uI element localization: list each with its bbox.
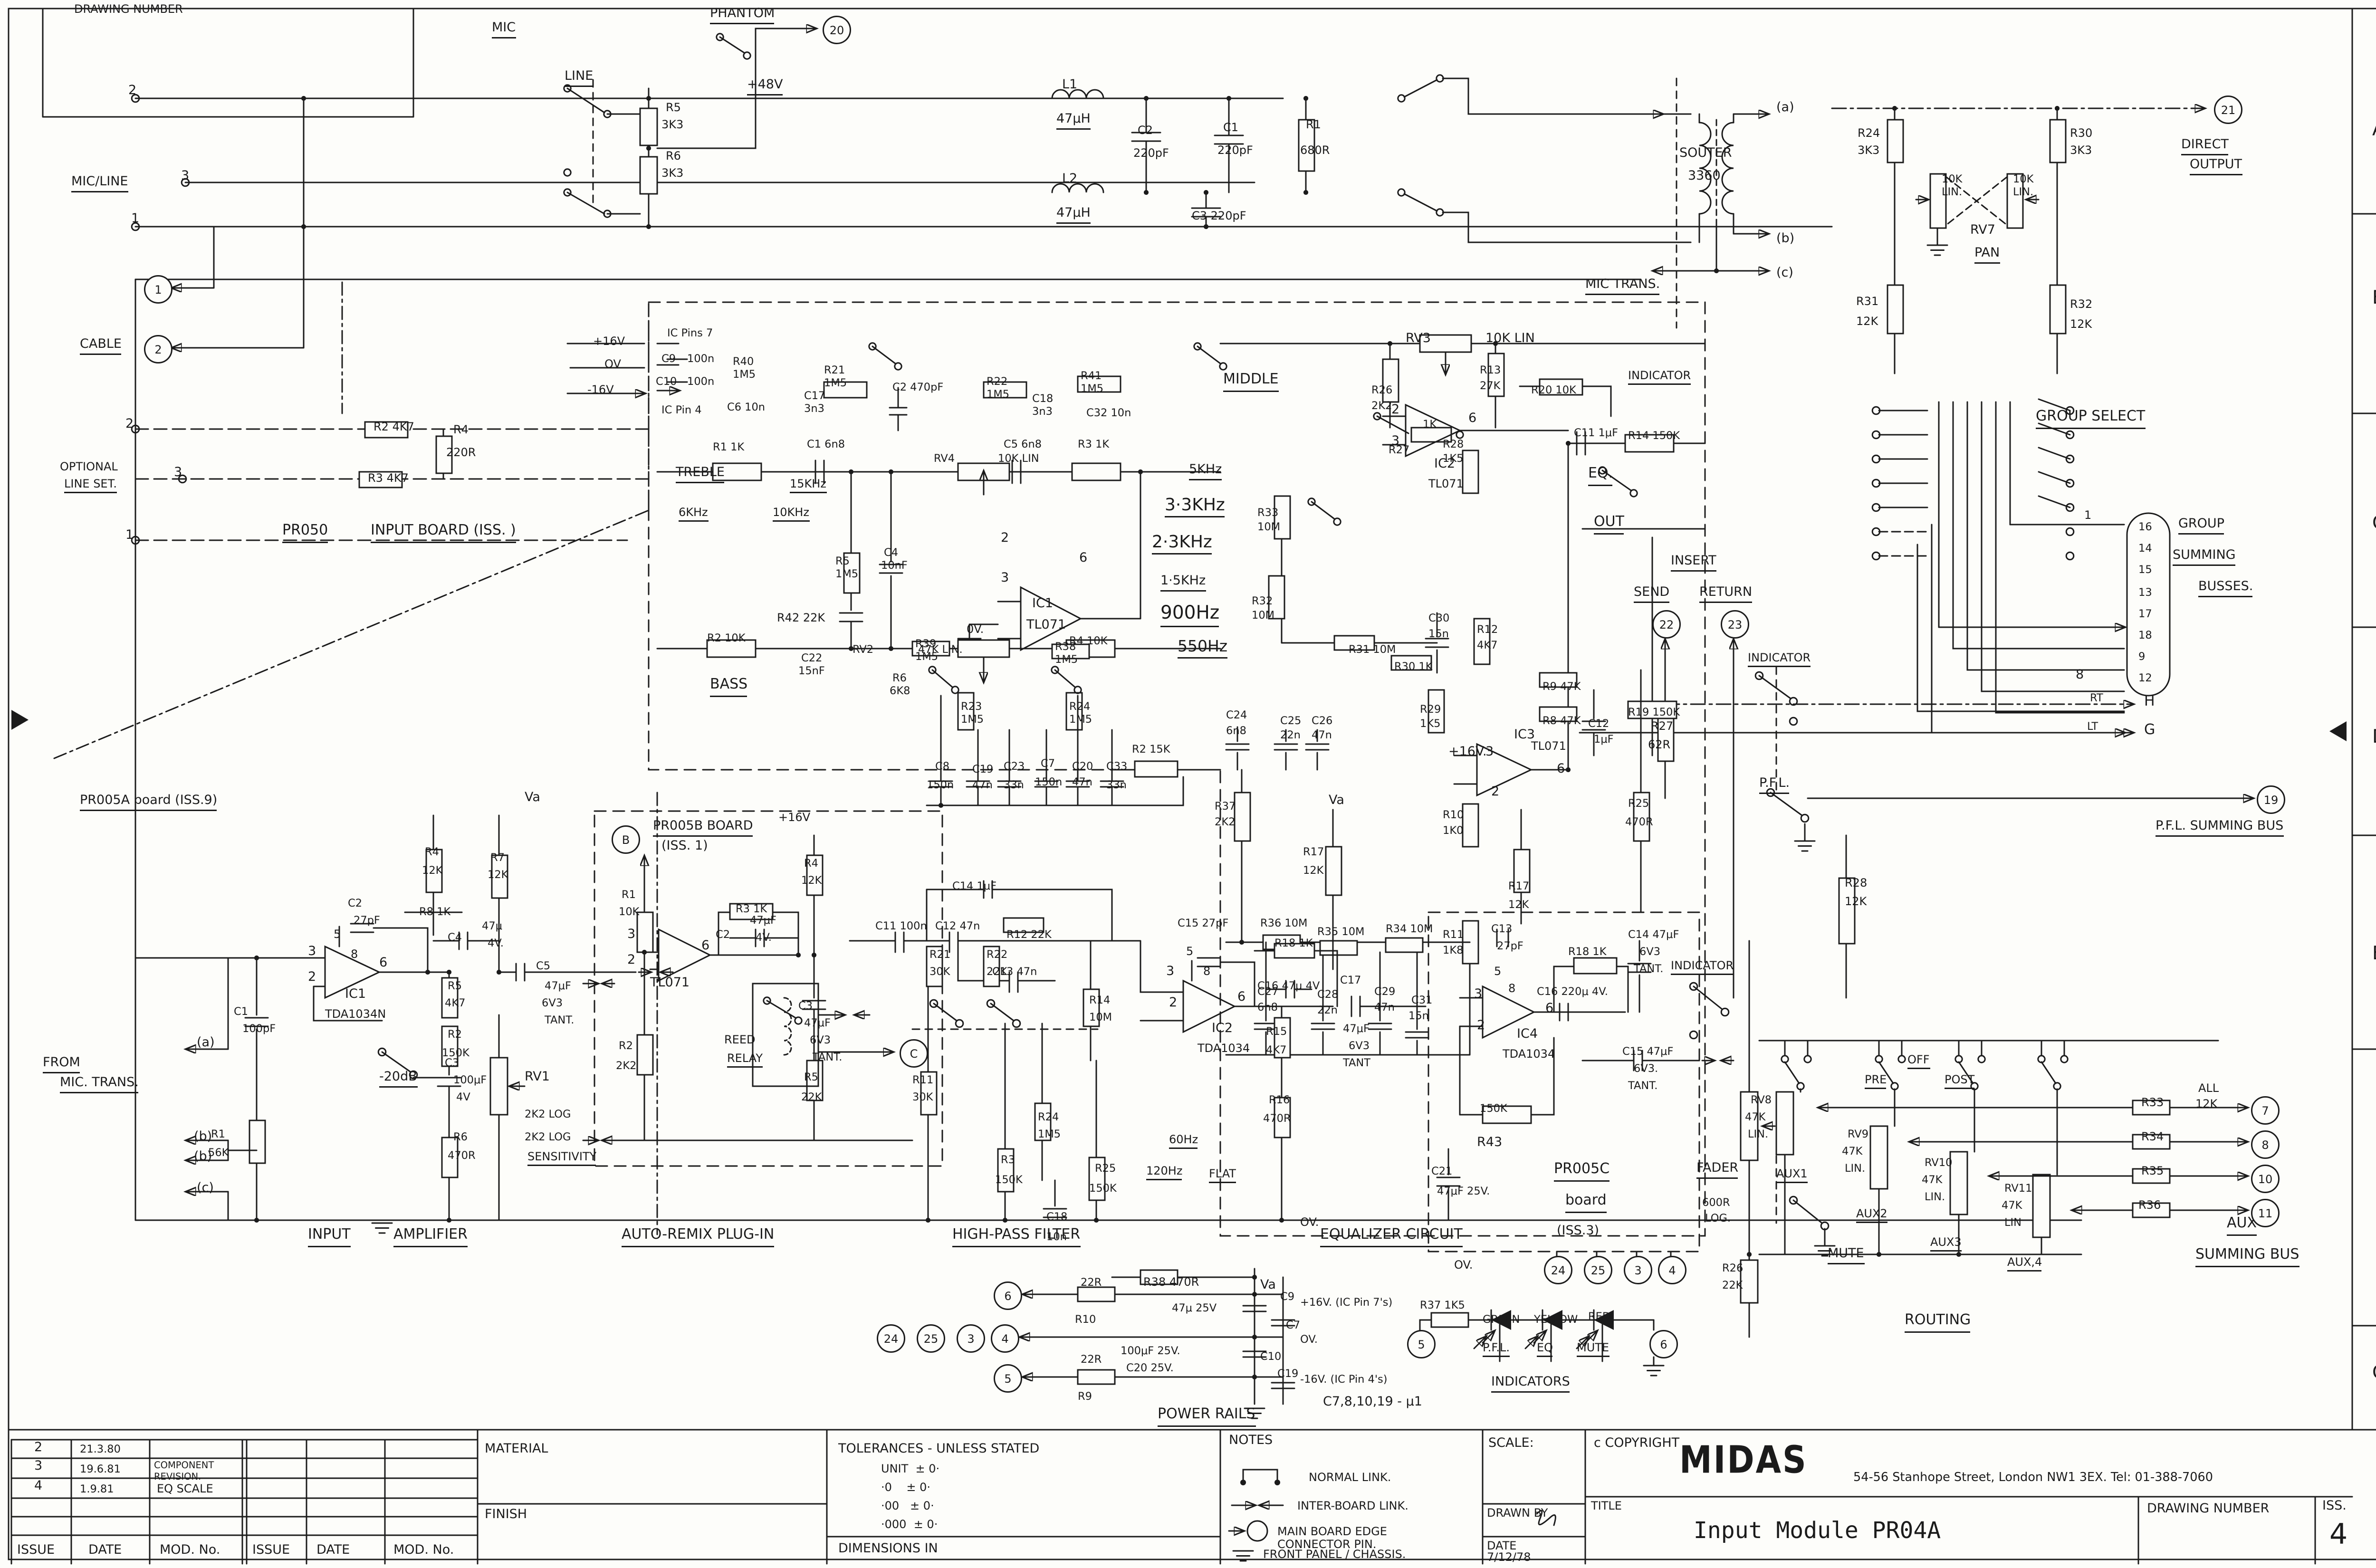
schematic-label: R24 [1069,701,1090,713]
schematic-label: 3·3KHz [1165,496,1225,517]
schematic-label: AMPLIFIER [393,1229,468,1247]
schematic-label: Va [1329,795,1344,809]
schematic-label: OPTIONAL [60,462,118,474]
schematic-label: R2 15K [1132,744,1170,755]
connector-pin-19: 19 [2257,785,2285,814]
schematic-label: P.F.L. [1483,1343,1510,1358]
schematic-label: 3n3 [804,403,824,415]
schematic-label: 1M5 [1038,1129,1061,1140]
tolerance-line: UNIT ± 0· [881,1463,939,1475]
schematic-label: R27 [1651,721,1673,733]
schematic-label: 1M5 [915,651,938,663]
pan-direct-output [1832,108,2204,373]
schematic-label: TL071 [1428,479,1464,491]
schematic-label: R5 [448,981,462,992]
schematic-label: R22 [987,949,1007,961]
schematic-label: 47K [2002,1200,2022,1212]
schematic-label: R25 [1095,1163,1116,1175]
schematic-label: C13 [1491,924,1512,935]
schematic-label: TANT. [813,1052,842,1063]
connector-pin-5: 5 [994,1364,1022,1393]
schematic-label: 2 [1491,787,1499,800]
schematic-label: R1 [622,889,636,901]
schematic-label: 1K [1423,419,1437,430]
schematic-label: 6 [379,958,387,971]
schematic-label: 27pF [354,915,380,927]
drawing-title: Input Module PR04A [1694,1517,1941,1544]
schematic-label: (a) [1776,103,1794,116]
schematic-label: TL071 [650,978,690,991]
schematic-label: R12 [1477,624,1498,636]
schematic-label: 1K5 [1420,718,1440,730]
schematic-label: C16 47μ 4V [1257,981,1320,992]
schematic-label: GREEN [1483,1314,1520,1326]
schematic-label: 470R [1263,1113,1291,1125]
schematic-label: SOUTER [1679,148,1732,162]
schematic-label: C10 [656,376,677,388]
rev-header-mod: MOD. No. [393,1544,454,1558]
schematic-label: R32 [1252,596,1273,607]
schematic-label: 10M [1252,610,1274,621]
schematic-label: 1 [2084,510,2091,522]
connector-pin-4: 4 [991,1324,1019,1353]
schematic-label: R30 [2070,128,2092,140]
schematic-label: 3 [1166,966,1174,980]
schematic-label: 120Hz [1146,1166,1182,1181]
schematic-label: 10K LIN [1485,334,1535,347]
connector-pin-5: 5 [1407,1330,1436,1358]
schematic-label: C32 10n [1086,408,1131,419]
schematic-label: 47μH [1056,208,1091,224]
schematic-label: INPUT BOARD (ISS. ) [371,525,516,543]
schematic-label: PHANTOM [710,9,775,25]
schematic-label: 10K [1942,174,1962,185]
schematic-label: R26 [1371,385,1392,396]
schematic-label: board [1565,1195,1607,1213]
schematic-label: C9 [1280,1291,1294,1303]
schematic-label: H [2144,696,2155,711]
rev-issue: 2 [34,1441,42,1455]
schematic-label: 3K3 [661,120,683,132]
connector-pin-B: B [612,825,640,854]
rev-date: 19.6.81 [80,1463,121,1475]
insert-pfl [1658,640,2252,998]
rev-mod: EQ SCALE [157,1482,213,1495]
schematic-label: 1 [131,214,139,227]
schematic-label: R2 [619,1041,633,1052]
schematic-label: C30 [1428,613,1449,624]
schematic-label: 1K0 [1443,825,1463,837]
schematic-label: 15nF [798,666,825,677]
schematic-label: 1·5KHz [1160,576,1206,592]
schematic-label: 3K3 [2070,145,2092,157]
schematic-label: CABLE [80,339,122,355]
schematic-label: 12K [1508,899,1529,911]
connector-pin-8: 8 [2251,1130,2280,1159]
schematic-label: C12 [1588,718,1609,730]
schematic-label: RV10 [1925,1157,1952,1169]
schematic-label: 6KHz [679,507,708,522]
schematic-label: R3 1K [1078,439,1109,450]
schematic-label: 33n [1106,780,1127,791]
schematic-label: 100n [687,354,714,365]
schematic-label: GROUP SELECT [2036,411,2145,429]
schematic-label: R16 [1269,1095,1290,1106]
schematic-label: (c) [197,1183,214,1196]
schematic-linework [0,0,2376,1568]
company-address: 54-56 Stanhope Street, London NW1 3EX. T… [1853,1471,2213,1485]
schematic-label: R1 1K [713,442,744,453]
schematic-label: ROUTING [1905,1314,1971,1332]
schematic-label: 2 [1001,533,1009,546]
schematic-label: R38 [1055,641,1076,653]
schematic-label: R33 [1257,507,1278,519]
schematic-label: 2 [125,419,134,432]
schematic-label: REED [724,1035,755,1047]
date-value: 7/12/78 [1487,1551,1531,1564]
schematic-label: TDA1034 [1503,1049,1555,1061]
schematic-label: C7,8,10,19 - μ1 [1323,1397,1422,1410]
schematic-label: C14 1μF [952,881,996,892]
schematic-label: 12K [488,870,508,881]
schematic-label: 22R [1081,1277,1102,1289]
schematic-label: 0V. [967,624,984,636]
schematic-label: R12 22K [1006,929,1052,941]
schematic-label: R29 [1420,704,1441,716]
schematic-label: Va [525,793,540,806]
schematic-label: R3 [1001,1155,1015,1166]
schematic-label: R7 [490,852,505,864]
schematic-label: C3 [445,1058,459,1069]
bus-number: 12 [2138,673,2152,685]
schematic-label: 2 [1169,998,1177,1011]
schematic-label: 3K3 [661,168,683,180]
schematic-label: C3 220pF [1192,211,1246,223]
schematic-label: 2K2 [616,1061,636,1072]
schematic-label: LOG. [1705,1213,1731,1224]
schematic-label: 10K [619,907,639,918]
schematic-label: 3 [174,468,182,481]
schematic-label: R18 1K [1274,938,1313,949]
schematic-label: FROM [43,1058,80,1074]
schematic-label: 1M5 [1069,714,1092,726]
tolerances-title: TOLERANCES - UNLESS STATED [838,1443,1039,1457]
schematic-label: (b) [1776,234,1794,247]
schematic-label: 3 [308,947,316,960]
schematic-label: 3 [181,171,189,184]
schematic-label: TANT. [1634,964,1663,975]
notes-title: NOTES [1229,1434,1273,1448]
schematic-label: C2 [348,898,362,909]
drawn-by-label: DRAWN BY [1487,1507,1548,1520]
schematic-label: SEND [1634,587,1669,603]
schematic-label: 47K [1842,1146,1862,1157]
schematic-label: R9 47K [1542,681,1581,693]
schematic-sheet: { "titleblock": { "copyright": "c COPYRI… [0,0,2376,1568]
schematic-label: 2K2 [1215,817,1235,828]
schematic-label: 6n8 [1257,1002,1278,1013]
schematic-label: TL071 [1026,620,1066,633]
schematic-label: RV2 [853,644,873,656]
connector-pin-24: 24 [877,1324,905,1353]
schematic-label: R19 150K [1628,707,1680,718]
schematic-label: LIN. [1942,187,1962,198]
mic-transformer [1398,75,1768,328]
schematic-label: R42 22K [777,613,825,625]
titleblock-lines [9,1430,2376,1564]
schematic-label: C19 [972,764,993,775]
schematic-label: R5 [666,103,681,115]
schematic-label: (c) [1776,268,1793,281]
schematic-label: C29 [1374,986,1395,998]
schematic-label: R37 [1215,801,1236,813]
schematic-label: 6 [701,941,709,954]
schematic-label: R5 [835,556,850,567]
schematic-label: 900Hz [1160,604,1219,627]
schematic-label: +16V [593,336,625,348]
schematic-label: IC4 [1517,1029,1538,1042]
schematic-label: OFF [1907,1055,1930,1070]
schematic-label: +16V. [1448,747,1487,760]
schematic-label: AUTO-REMIX PLUG-IN [622,1229,774,1247]
schematic-label: OV. [1454,1260,1473,1272]
schematic-label: 27pF [1497,941,1523,952]
schematic-label: C20 [1072,761,1093,773]
schematic-label: 6K8 [890,686,910,697]
schematic-label: 12K [1303,865,1323,877]
schematic-label: INDICATOR [1748,653,1811,668]
schematic-label: 470R [448,1150,476,1162]
schematic-label: C26 [1312,716,1332,727]
schematic-label: R34 [2141,1132,2164,1144]
schematic-label: C7 [1041,758,1055,770]
scale-label: SCALE: [1488,1437,1534,1451]
schematic-label: IC Pin 4 [661,405,702,416]
schematic-label: 600R [1702,1197,1730,1209]
schematic-label: C2 [1138,125,1153,137]
auto-remix [583,811,942,1166]
schematic-label: FLAT [1209,1169,1236,1184]
schematic-label: MIC/LINE [71,177,128,193]
schematic-label: 4V. [488,938,504,949]
schematic-label: OV. [1300,1334,1318,1346]
schematic-label: TANT. [1628,1080,1657,1092]
note-item: FRONT PANEL / CHASSIS. [1263,1548,1406,1561]
tolerance-line: ·000 ± 0· [881,1518,938,1531]
schematic-label: 8 [1203,966,1210,978]
schematic-label: 12K [2070,319,2092,331]
schematic-sheet-viewport: { "titleblock": { "copyright": "c COPYRI… [0,0,2376,1568]
zone-letter-C: C [2372,513,2376,535]
schematic-label: LIN. [2013,187,2033,198]
schematic-label: 47μH [1056,114,1091,130]
schematic-label: POST [1945,1075,1974,1090]
bus-number: 17 [2138,608,2152,620]
bus-number: 18 [2138,630,2152,641]
schematic-label: 15n [1408,1011,1429,1022]
schematic-label: R4 [453,425,469,437]
schematic-label: FADER [1696,1163,1738,1179]
schematic-label: 6n8 [1226,726,1246,737]
schematic-label: +16V [778,813,810,824]
schematic-label: PR005A board (ISS.9) [80,795,217,812]
schematic-label: POWER RAILS [1158,1408,1255,1426]
schematic-label: 6V3 [810,1035,831,1046]
schematic-label: 8 [351,949,358,961]
schematic-label: R34 10M [1386,924,1433,935]
rev-issue: 4 [34,1480,42,1494]
schematic-label: 6 [1079,553,1087,566]
copyright-note: c COPYRIGHT [1594,1437,1679,1451]
zone-letter-B: B [2372,288,2376,309]
schematic-label: 10M [1257,522,1280,533]
schematic-label: PR005B BOARD [653,821,753,837]
schematic-label: C33 [1106,761,1127,773]
schematic-label: C17 [804,391,825,402]
schematic-label: DIRECT [2181,140,2229,156]
schematic-label: 8 [2076,670,2084,683]
schematic-label: INDICATOR [1671,961,1734,975]
schematic-label: R37 1K5 [1420,1300,1465,1311]
connector-pin-7: 7 [2251,1096,2280,1125]
schematic-label: R39 [915,639,936,650]
schematic-label: 6 [1468,413,1476,427]
schematic-label: C18 [1046,1212,1067,1223]
schematic-label: R14 [1089,995,1110,1006]
schematic-label: LIN [2004,1217,2022,1229]
schematic-label: 3 [1391,436,1399,449]
schematic-label: R2 4K7 [374,422,414,434]
schematic-label: LINE [565,71,593,87]
schematic-label: C5 [536,961,550,972]
schematic-label: C25 [1280,716,1301,727]
schematic-label: 1 [125,530,134,544]
schematic-label: 47μF [545,981,571,992]
schematic-label: 150n [927,780,954,791]
connector-pin-21: 21 [2214,96,2242,124]
schematic-label: EQ [1537,1343,1553,1358]
schematic-label: R8 47K [1542,716,1581,727]
schematic-label: 550Hz [1178,639,1227,658]
schematic-label: INDICATOR [1628,371,1691,385]
schematic-label: 4K7 [1477,640,1497,651]
schematic-label: 47μF [750,915,776,927]
schematic-label: IC2 [1434,459,1455,472]
tolerance-line: ·00 ± 0· [881,1500,934,1512]
schematic-label: R11 [1443,929,1464,941]
schematic-label: 6V3 [1639,947,1660,958]
schematic-label: RV4 [934,453,955,465]
schematic-label: R6 [666,151,681,163]
schematic-label: R24 [1038,1112,1059,1123]
schematic-label: TDA1034 [1198,1043,1250,1055]
schematic-label: SUMMING BUS [2195,1249,2299,1267]
schematic-label: 1M5 [835,569,858,580]
schematic-label: RED [1588,1311,1610,1323]
schematic-label: 10KHz [773,507,809,522]
schematic-label: 2K2 LOG [525,1132,571,1143]
schematic-label: R11 [912,1075,933,1086]
schematic-label: (ISS.3) [1557,1226,1599,1239]
schematic-label: 2 [308,972,316,985]
connector-pin-3: 3 [1624,1256,1652,1284]
schematic-label: 62R [1648,740,1670,752]
schematic-label: SENSITIVITY [527,1152,596,1166]
schematic-label: IC2 [1212,1023,1233,1037]
connector-pin-1: 1 [144,275,172,304]
schematic-label: 2 [128,86,136,99]
schematic-label: 47K [1745,1112,1765,1123]
schematic-label: 6V3 [1349,1041,1370,1052]
schematic-label: R4 [804,858,818,870]
title-label: TITLE [1591,1500,1622,1512]
connector-pin-2: 2 [144,335,172,363]
schematic-label: INDICATORS [1491,1377,1570,1393]
schematic-label: 30K [912,1092,933,1103]
schematic-label: RELAY [727,1053,763,1068]
schematic-label: LT [2087,721,2098,733]
schematic-label: 470R [1625,817,1653,828]
bus-number: 9 [2138,652,2145,663]
schematic-label: 47μF [1343,1023,1370,1035]
schematic-label: 12K [422,865,442,877]
schematic-label: R1 [1306,120,1321,132]
schematic-label: 680R [1300,145,1330,157]
schematic-label: R6 [453,1132,468,1143]
schematic-label: 3 [627,929,635,943]
schematic-label: 15KHz [790,479,826,494]
schematic-label: 1M5 [1081,383,1103,395]
schematic-label: 2K2 [1371,401,1392,412]
junction-dots [254,96,2060,1379]
schematic-label: ALL [2198,1083,2219,1095]
schematic-label: R23 [961,701,982,713]
schematic-label: R9 [1078,1391,1092,1403]
schematic-label: C12 47n [935,921,980,932]
schematic-label: C16 220μ 4V. [1537,986,1608,998]
schematic-label: 22n [1280,730,1301,741]
schematic-label: 150K [995,1175,1023,1186]
schematic-label: (ISS. 1) [661,841,708,854]
schematic-label: G [2144,724,2155,739]
schematic-label: EQ. [1588,468,1613,486]
schematic-label: R5 [804,1072,818,1083]
schematic-label: 6 [1237,992,1245,1005]
schematic-label: C31 [1411,995,1432,1006]
schematic-label: 60Hz [1169,1135,1198,1149]
schematic-label: 12K [1845,897,1867,908]
connector-pin-3: 3 [957,1324,985,1353]
rev-header-date: DATE [88,1544,122,1558]
zone-letter-D: D [2372,727,2376,748]
schematic-label: INPUT [308,1229,351,1247]
schematic-label: MIC [492,23,516,39]
schematic-label: 5 [1186,947,1193,958]
schematic-label: AUX [2227,1217,2257,1235]
rev-header-date: DATE [316,1544,350,1558]
schematic-label: 1μF [1594,734,1614,746]
zone-letter-G: G [2372,1363,2376,1384]
schematic-label: TANT. [545,1015,574,1026]
schematic-label: 150K [1480,1103,1507,1115]
schematic-label: 6 [1557,764,1565,777]
schematic-label: 15n [1428,629,1449,640]
connector-pin-24: 24 [1544,1256,1572,1284]
schematic-label: MUTE [1577,1343,1609,1358]
schematic-label: R4 [425,847,439,858]
schematic-label: 12K [1856,316,1878,328]
schematic-label: R18 1K [1568,947,1607,958]
